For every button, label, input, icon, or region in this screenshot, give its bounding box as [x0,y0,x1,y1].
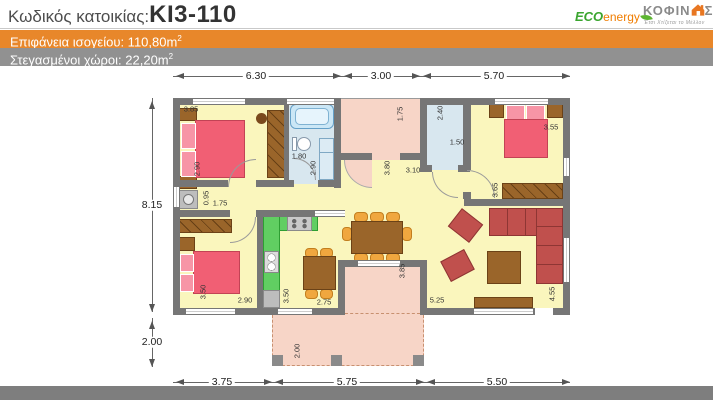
dimension-labels-layer: 6.303.005.708.152.003.755.755.503.852.90… [0,0,713,400]
dimension-label: 4.55 [548,287,556,302]
dimension-label: 3.00 [368,71,394,82]
dimension-label: 3.50 [282,289,290,304]
dimension-label: 3.85 [398,264,406,279]
dimension-label: 1.80 [292,152,307,160]
dimension-label: 3.55 [544,123,559,131]
dimension-label: 3.10 [406,166,421,174]
dimension-label: 2.75 [317,298,332,306]
dimension-label: 1.75 [213,199,228,207]
dimension-label: 3.65 [491,183,499,198]
dimension-label: 2.90 [193,162,201,177]
dimension-label: 8.15 [139,200,165,211]
dimension-label: 0.95 [202,191,210,206]
floor-plan-page: { "header": { "code_label": "Κωδικός κατ… [0,0,713,400]
dimension-label: 2.00 [139,337,165,348]
dimension-label: 5.70 [481,71,507,82]
floor-plan: 6.303.005.708.152.003.755.755.503.852.90… [0,0,713,400]
dimension-label: 2.90 [238,296,253,304]
dimension-label: 2.00 [293,344,301,359]
dimension-label: 3.80 [383,161,391,176]
dimension-label: 6.30 [243,71,269,82]
dimension-label: 5.25 [430,296,445,304]
dimension-label: 1.50 [450,138,465,146]
dimension-label: 2.90 [309,161,317,176]
bottom-bar [0,386,713,400]
dimension-label: 2.40 [436,106,444,121]
dimension-label: 3.85 [184,105,199,113]
dimension-label: 1.75 [396,107,404,122]
dimension-label: 3.50 [199,285,207,300]
